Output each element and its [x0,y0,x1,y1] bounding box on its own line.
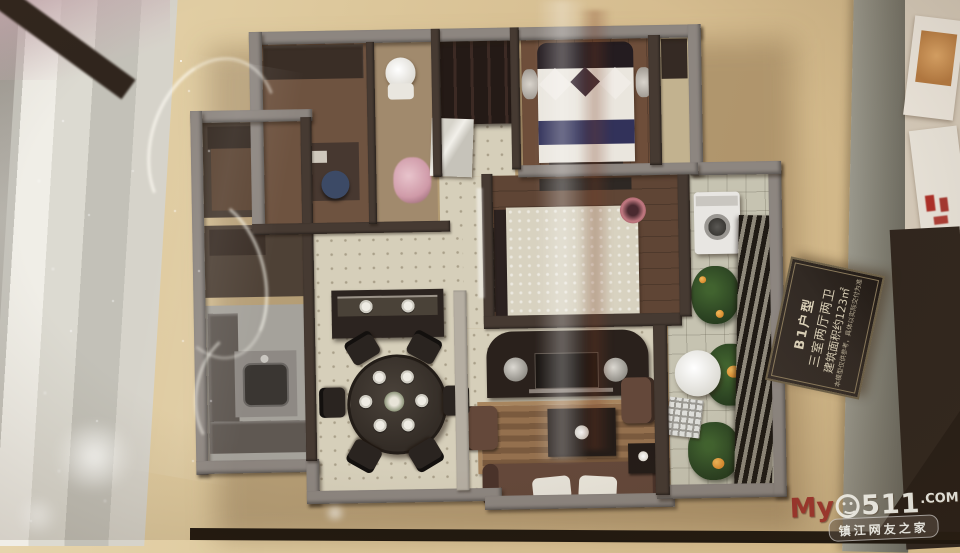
poster-image [915,30,957,86]
poster-red-text [939,197,949,212]
wall-balcony-bottom [657,483,787,499]
wall-kitchen-bottom [196,459,318,474]
cabinet-trim [529,388,613,393]
wall-closet-divider [648,35,662,165]
armchair [621,377,656,424]
wall-balcony-divider-upper [677,174,691,316]
poster [903,15,960,120]
bed2-window [539,177,631,191]
wall-balcony-top [690,161,781,176]
flower-arrangement-pink [393,157,432,204]
closet-hall-floor [659,34,691,167]
poster [909,125,960,234]
wall-entry-right [510,27,521,169]
tv-center-panel [534,352,599,389]
pillow [599,67,632,100]
orange-flower [716,310,724,318]
marble-pillar-strip [0,0,178,546]
wall-dining-bottom [307,488,502,504]
photo-of-apartment-model: { "plaque": { "title": "B1户型", "layout":… [0,0,960,540]
dining-chair [319,387,346,417]
side-table [628,443,659,474]
plaque-inner-frame: B1户型 三室两厅两卫 建筑面积约123㎡ 本模型仅供参考，具体以实际交付为准 [771,262,879,393]
wall-living-bottom [485,493,675,510]
poster-wall [905,0,960,262]
entry-wardrobe [439,38,512,125]
washer-drum [704,214,730,240]
sparkle-field-base [180,60,182,62]
watermark-tagline: 镇江网友之家 [838,521,929,539]
table-ornament [575,425,589,439]
speaker [503,357,527,381]
study-shelf [263,44,364,80]
flower-stand [521,69,538,99]
pillow [539,68,572,101]
wall-top-right [688,24,704,174]
bed-runner [538,119,634,145]
room-bathroom [371,39,438,225]
wall-living-right [653,325,670,495]
smiley-zero-icon [836,494,861,519]
sideboard-glass [337,295,437,317]
watermark-prefix: My [789,492,835,525]
watermark-tld: .COM [920,490,959,507]
room-master-bedroom [521,35,653,169]
closet-unit [661,38,688,78]
watermark-tagline-badge: 镇江网友之家 [828,514,939,542]
smiley-mouth [842,501,859,515]
balcony-chair [665,397,703,439]
room-second-bedroom [491,173,682,323]
washer-control-panel [696,196,738,207]
sideboard [331,289,444,339]
second-bed [506,205,640,319]
pillow-dark [570,67,600,97]
flower-wreath [620,197,646,223]
table-lamp [638,451,648,461]
coffee-table [547,408,616,457]
orange-flower [699,276,706,283]
watermark: My 511.COM 镇江网友之家 [789,486,959,541]
toilet-tank [388,83,414,99]
washing-machine [694,192,741,255]
poster-red-text [925,195,936,212]
poster-red-text [933,215,948,225]
master-bed [537,67,635,163]
